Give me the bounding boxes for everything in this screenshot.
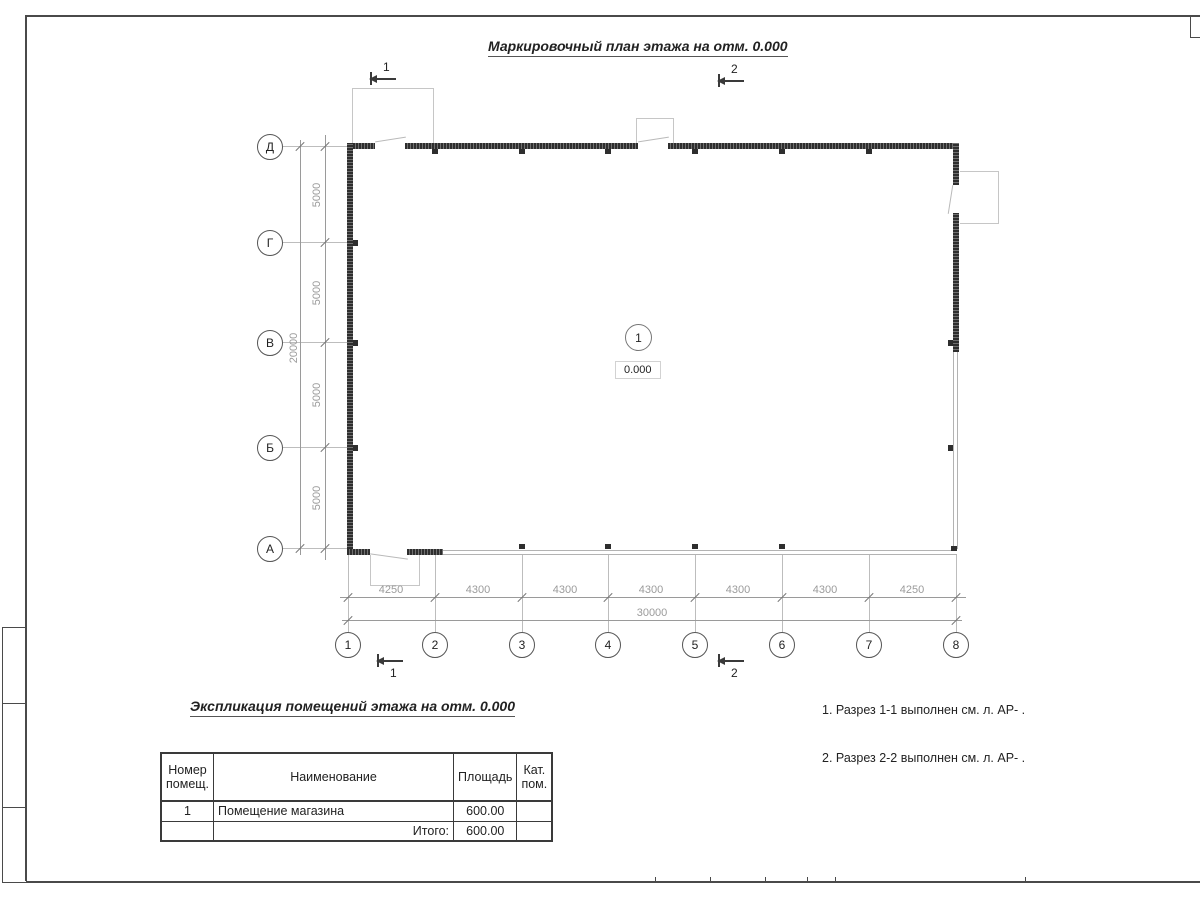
- dim-value-5000-4: 5000: [311, 478, 323, 518]
- axis-circle-B: Б: [257, 435, 283, 461]
- cell-room-category: [517, 801, 552, 821]
- axis-circle-5: 5: [682, 632, 708, 658]
- axis-line-G: [283, 242, 347, 243]
- axis-label: 4: [605, 638, 612, 652]
- axis-circle-4: 4: [595, 632, 621, 658]
- note-line-2: 2. Разрез 2-2 выполнен см. л. АР- .: [822, 750, 1025, 766]
- dim-value-4300-4: 4300: [713, 584, 763, 596]
- dim-value-4300-1: 4300: [453, 584, 503, 596]
- margin-box-2: [2, 703, 26, 809]
- note-line-1: 1. Разрез 1-1 выполнен см. л. АР- .: [822, 702, 1025, 718]
- titleblock-tick: [710, 877, 711, 881]
- axis-label: Б: [266, 441, 274, 455]
- cell-total-area: 600.00: [454, 821, 517, 841]
- porch-right: [960, 171, 999, 224]
- axis-label: А: [266, 542, 274, 556]
- pilaster-bottom-6: [779, 544, 785, 549]
- wall-top-seg3: [668, 143, 959, 149]
- axis-circle-V: В: [257, 330, 283, 356]
- pilaster-bottom-3: [519, 544, 525, 549]
- section-2-bottom-label: 2: [731, 666, 738, 680]
- header-room-number: Номер помещ.: [161, 753, 214, 801]
- axis-label: Д: [266, 140, 274, 154]
- margin-inner-line: [25, 627, 26, 881]
- axis-label: 3: [519, 638, 526, 652]
- pilaster-bottom-8: [951, 546, 957, 551]
- axis-label: 8: [953, 638, 960, 652]
- dim-value-30000: 30000: [626, 607, 678, 619]
- section-2-top-arrow: [718, 80, 744, 82]
- axis-label: 2: [432, 638, 439, 652]
- dim-value-20000: 20000: [288, 322, 300, 374]
- wall-right-seg1: [953, 143, 959, 185]
- axis-circle-G: Г: [257, 230, 283, 256]
- header-name: Наименование: [214, 753, 454, 801]
- room-elevation-box: 0.000: [615, 361, 661, 379]
- axis-label: 7: [866, 638, 873, 652]
- titleblock-tick: [1025, 877, 1026, 881]
- pilaster-top-6: [779, 149, 785, 154]
- dim-value-5000-2: 5000: [311, 273, 323, 313]
- dim-value-4300-3: 4300: [626, 584, 676, 596]
- wall-bottom-seg1: [347, 549, 370, 555]
- frame-top: [25, 15, 1200, 17]
- pilaster-left-B: [353, 445, 358, 451]
- table-header-row: Номер помещ. Наименование Площадь Кат. п…: [161, 753, 552, 801]
- dim-value-5000-3: 5000: [311, 375, 323, 415]
- pilaster-top-2: [432, 149, 438, 154]
- section-1-top-label: 1: [383, 60, 390, 74]
- pilaster-bottom-5: [692, 544, 698, 549]
- axis-line-D: [283, 146, 347, 147]
- wall-bottom-glazing: [443, 550, 957, 555]
- section-2-bottom-arrow: [718, 660, 744, 662]
- section-1-bottom-arrow: [377, 660, 403, 662]
- dim-line-bottom-total: [342, 620, 962, 621]
- wall-bottom-seg2: [407, 549, 443, 555]
- porch-bottom-left: [370, 555, 420, 586]
- dim-value-4300-5: 4300: [800, 584, 850, 596]
- margin-box-3: [2, 807, 26, 883]
- cell-room-name: Помещение магазина: [214, 801, 454, 821]
- explication-table: Номер помещ. Наименование Площадь Кат. п…: [160, 752, 553, 842]
- pilaster-left-V: [353, 340, 358, 346]
- pilaster-bottom-4: [605, 544, 611, 549]
- table-total-row: Итого: 600.00: [161, 821, 552, 841]
- pilaster-top-4: [605, 149, 611, 154]
- notes-block: 1. Разрез 1-1 выполнен см. л. АР- . 2. Р…: [822, 670, 1025, 798]
- axis-circle-D: Д: [257, 134, 283, 160]
- explication-title: Экспликация помещений этажа на отм. 0.00…: [190, 698, 515, 717]
- wall-right-seg2: [953, 213, 959, 352]
- wall-left: [347, 143, 353, 555]
- axis-line-B: [283, 447, 347, 448]
- titleblock-tick: [655, 877, 656, 881]
- titleblock-tick: [807, 877, 808, 881]
- table-row: 1 Помещение магазина 600.00: [161, 801, 552, 821]
- dim-line-left-segments: [325, 135, 326, 560]
- section-2-top-label: 2: [731, 62, 738, 76]
- frame-bottom: [2, 881, 1200, 883]
- room-number-tag: 1: [625, 324, 652, 351]
- dim-value-4250-right: 4250: [887, 584, 937, 596]
- section-1-bottom-label: 1: [390, 666, 397, 680]
- room-elevation-value: 0.000: [624, 364, 652, 376]
- pilaster-right-B: [948, 445, 953, 451]
- pilaster-left-G: [353, 240, 358, 246]
- dim-value-5000-1: 5000: [311, 175, 323, 215]
- axis-circle-2: 2: [422, 632, 448, 658]
- wall-right-glazing: [953, 352, 958, 549]
- pilaster-right-V: [948, 340, 953, 346]
- dim-value-4300-2: 4300: [540, 584, 590, 596]
- axis-circle-A: А: [257, 536, 283, 562]
- drawing-sheet: Маркировочный план этажа на отм. 0.000: [0, 0, 1200, 900]
- pilaster-top-5: [692, 149, 698, 154]
- cell-room-number: 1: [161, 801, 214, 821]
- dim-value-4250-left: 4250: [366, 584, 416, 596]
- header-area: Площадь: [454, 753, 517, 801]
- axis-label: 5: [692, 638, 699, 652]
- axis-circle-6: 6: [769, 632, 795, 658]
- dim-line-left-total: [300, 140, 301, 555]
- cell-total-category: [517, 821, 552, 841]
- axis-label: 1: [345, 638, 352, 652]
- axis-label: 6: [779, 638, 786, 652]
- axis-circle-3: 3: [509, 632, 535, 658]
- axis-circle-1: 1: [335, 632, 361, 658]
- porch-top-left: [352, 88, 434, 144]
- cell-room-area: 600.00: [454, 801, 517, 821]
- titleblock-tick: [835, 877, 836, 881]
- margin-box-1: [2, 627, 26, 705]
- cell-total-label: Итого:: [214, 821, 454, 841]
- header-category: Кат. пом.: [517, 753, 552, 801]
- corner-box: [1190, 17, 1200, 38]
- axis-circle-7: 7: [856, 632, 882, 658]
- titleblock-tick: [765, 877, 766, 881]
- pilaster-top-3: [519, 149, 525, 154]
- section-1-top-arrow: [370, 78, 396, 80]
- door-leaf-right: [948, 185, 954, 214]
- plan-title: Маркировочный план этажа на отм. 0.000: [488, 38, 788, 57]
- room-number: 1: [635, 331, 642, 345]
- cell-total-empty: [161, 821, 214, 841]
- pilaster-top-7: [866, 149, 872, 154]
- axis-circle-8: 8: [943, 632, 969, 658]
- axis-label: В: [266, 336, 274, 350]
- axis-line-A: [283, 548, 347, 549]
- axis-label: Г: [267, 236, 274, 250]
